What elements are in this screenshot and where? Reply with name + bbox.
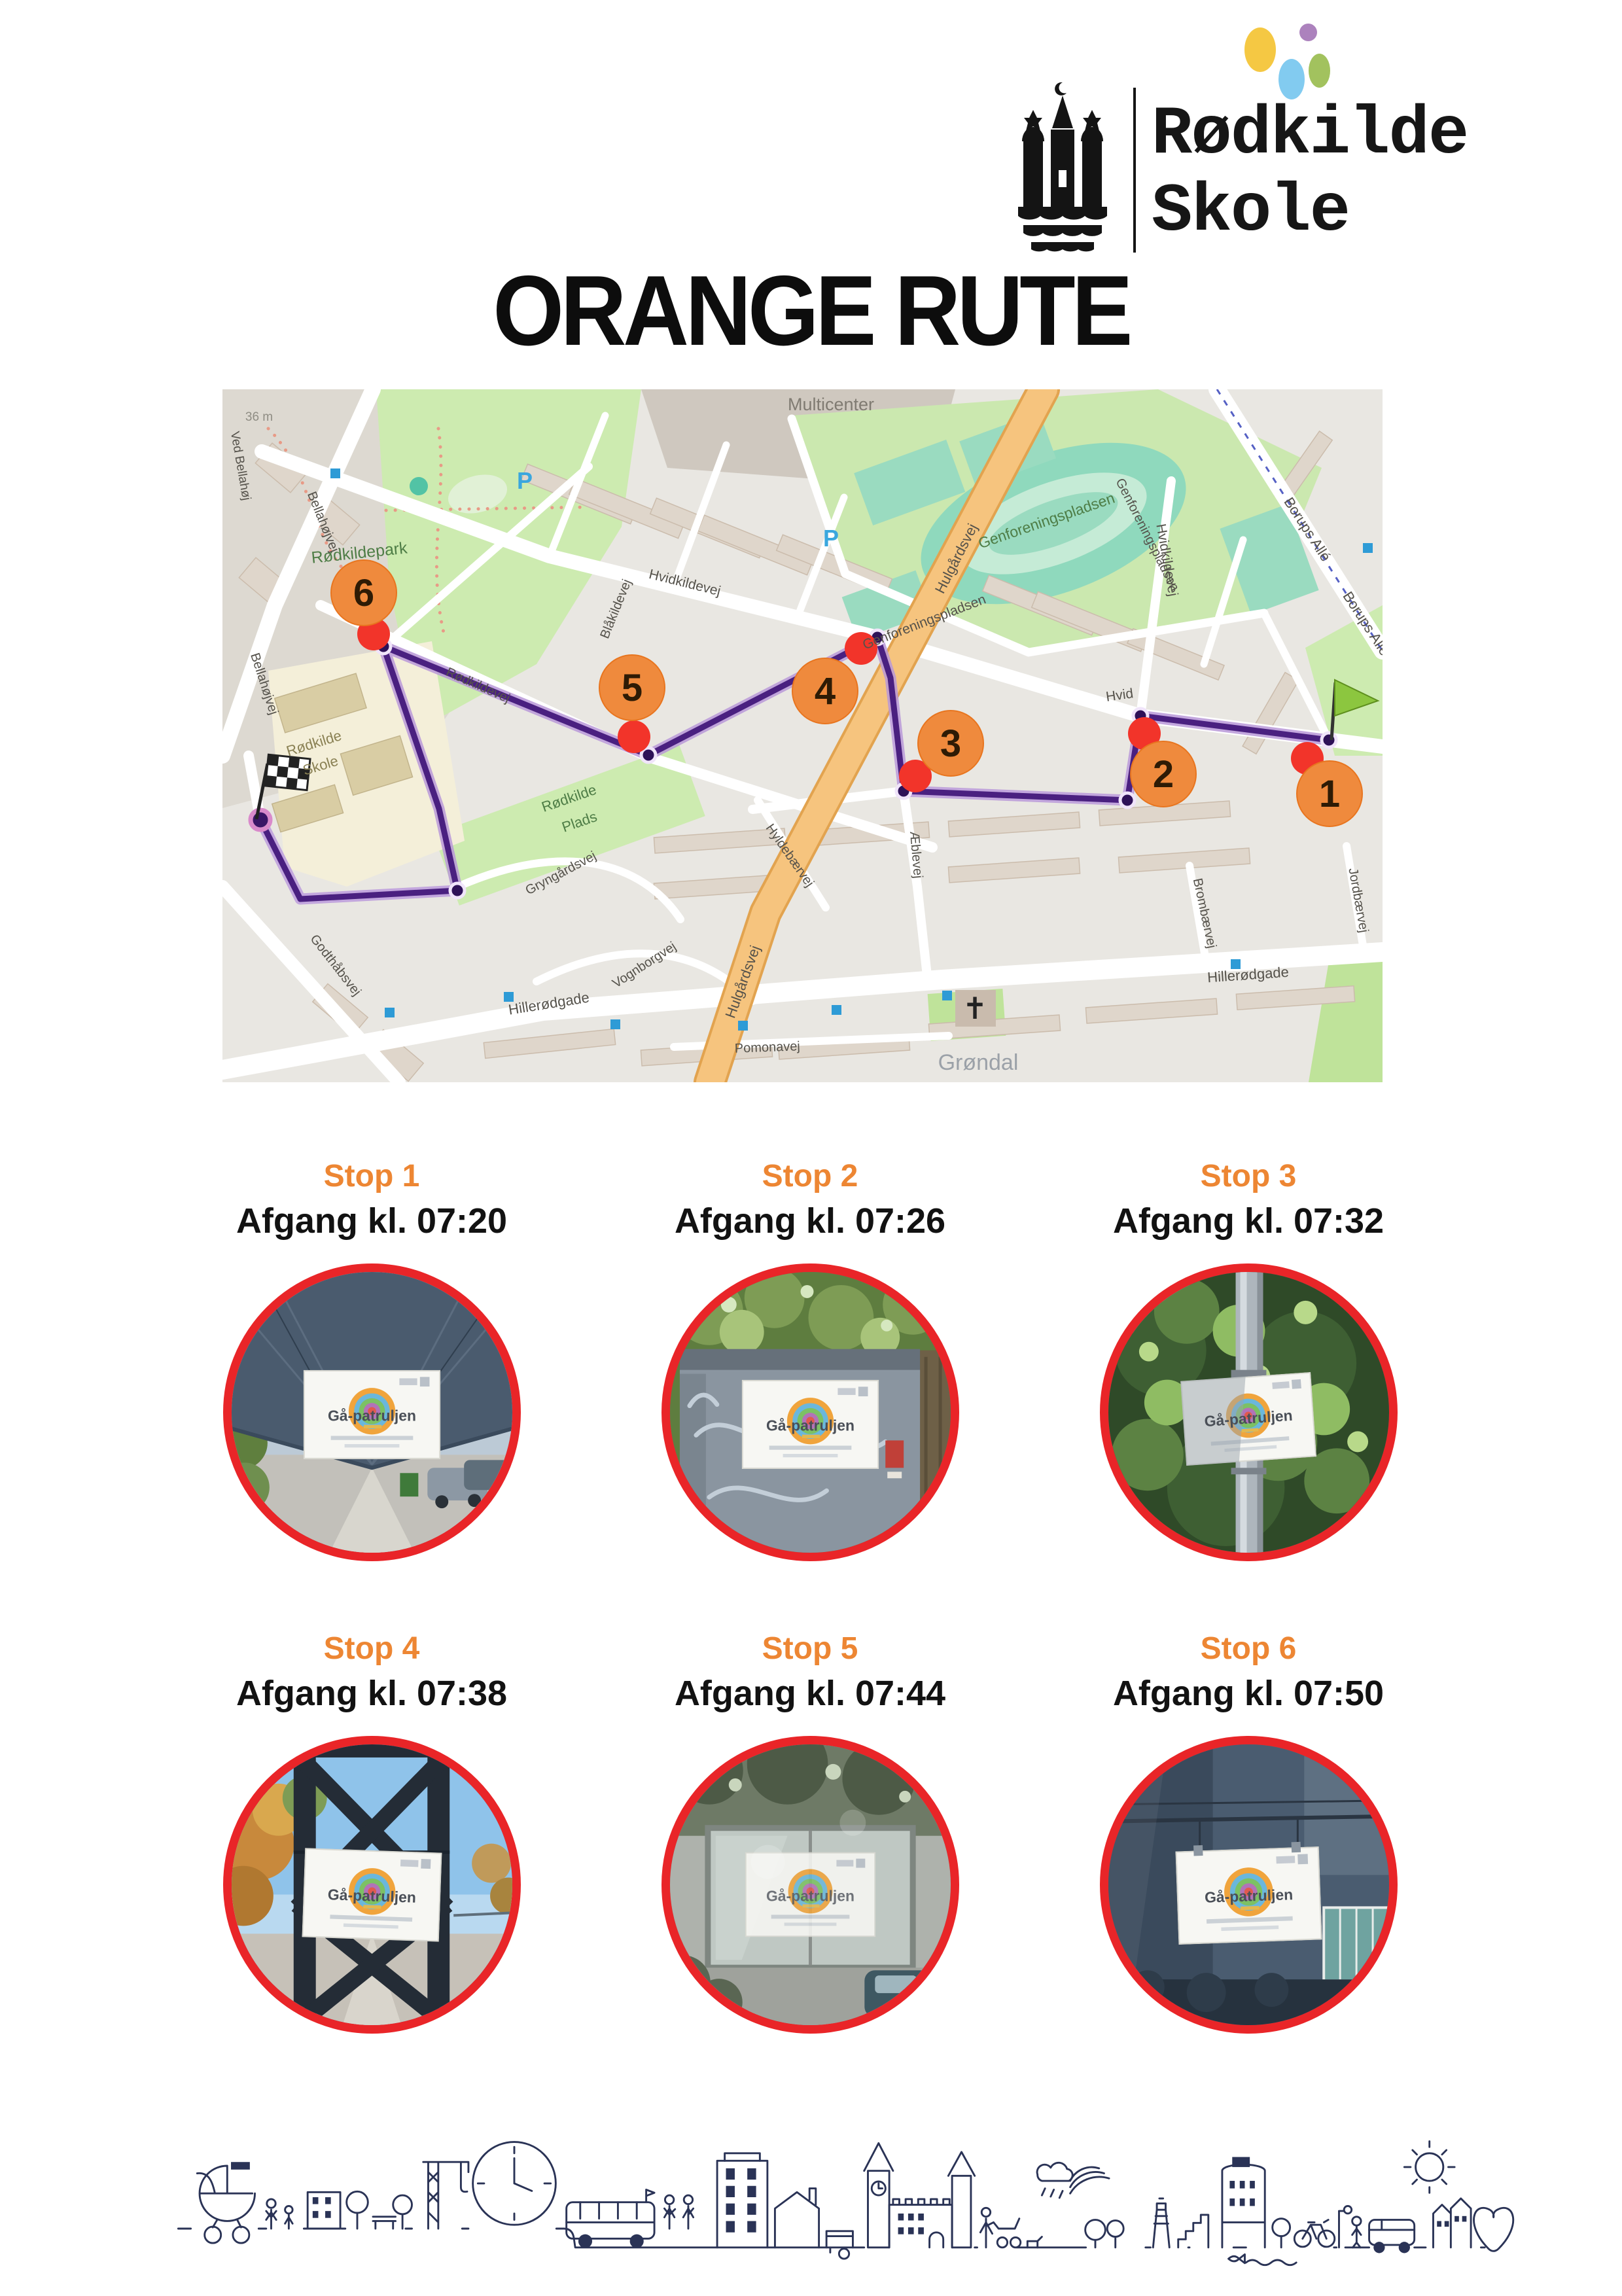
page: Rødkilde Skole ORANGE RUTE <box>0 0 1622 2296</box>
map-street-label: Pomonavej <box>734 1039 800 1055</box>
stop-card-1: Stop 1 Afgang kl. 07:20 Gå-patruljen <box>162 1158 581 1561</box>
map-stop-badge-6: 6 <box>331 560 397 626</box>
footer-cityscape-illustration <box>150 2134 1538 2291</box>
svg-text:2: 2 <box>1153 753 1174 796</box>
stop-5-label: Stop 5 <box>601 1631 1019 1667</box>
sign-text: Gå-patruljen <box>327 1886 416 1906</box>
map-svg: ✝ <box>222 389 1383 1082</box>
sign-text: Gå-patruljen <box>766 1887 854 1904</box>
stop-photo-1: Gå-patruljen <box>223 1263 521 1561</box>
stop-1-time: Afgang kl. 07:20 <box>162 1201 581 1241</box>
sign-text: Gå-patruljen <box>1204 1886 1293 1906</box>
stop-card-6: Stop 6 Afgang kl. 07:50 <box>1039 1631 1458 2034</box>
stop-card-2: Stop 2 Afgang kl. 07:26 <box>601 1158 1019 1561</box>
stop-5-time: Afgang kl. 07:44 <box>601 1673 1019 1714</box>
svg-text:4: 4 <box>815 670 836 713</box>
map-street-label: Multicenter <box>788 395 874 414</box>
stop-photo-3: Gå-patruljen <box>1100 1263 1398 1561</box>
logo-dot-green <box>1309 54 1330 88</box>
stop-photo-5: Gå-patruljen <box>661 1736 959 2034</box>
stop-card-5: Stop 5 Afgang kl. 07:44 Gå-patruljen <box>601 1631 1019 2034</box>
stop-photo-6: Gå-patruljen <box>1100 1736 1398 2034</box>
svg-text:6: 6 <box>353 572 374 614</box>
stop-card-4: Stop 4 Afgang kl. 07:38 <box>162 1631 581 2034</box>
map-stop-badge-4: 4 <box>792 658 858 724</box>
stop-3-label: Stop 3 <box>1039 1158 1458 1194</box>
svg-text:3: 3 <box>940 722 961 765</box>
map-stop-badge-2: 2 <box>1131 741 1196 807</box>
stop-4-label: Stop 4 <box>162 1631 581 1667</box>
map-street-label: Grøndal <box>938 1050 1019 1075</box>
logo-dot-blue <box>1278 59 1305 99</box>
copenhagen-towers-icon <box>1014 79 1111 259</box>
stop-2-time: Afgang kl. 07:26 <box>601 1201 1019 1241</box>
logo-school-sub: Skole <box>1152 174 1468 251</box>
map-stop-badge-5: 5 <box>599 655 665 720</box>
school-logo: Rødkilde Skole <box>1014 25 1511 267</box>
svg-text:✝: ✝ <box>962 991 988 1025</box>
stop-photo-4: Gå-patruljen <box>223 1736 521 2034</box>
svg-text:1: 1 <box>1319 773 1340 815</box>
stop-6-time: Afgang kl. 07:50 <box>1039 1673 1458 1714</box>
logo-divider <box>1133 88 1136 253</box>
map-street-label: P <box>517 467 533 494</box>
map-stop-badge-1: 1 <box>1297 761 1362 826</box>
stop-6-label: Stop 6 <box>1039 1631 1458 1667</box>
route-map: ✝ <box>222 389 1383 1082</box>
sign-text: Gå-patruljen <box>766 1417 854 1434</box>
map-street-label: P <box>823 525 839 552</box>
map-stop-badge-3: 3 <box>918 711 983 776</box>
stop-2-label: Stop 2 <box>601 1158 1019 1194</box>
logo-dot-yellow <box>1244 27 1276 72</box>
stop-card-3: Stop 3 Afgang kl. 07:32 Gå-patruljen <box>1039 1158 1458 1561</box>
stop-4-time: Afgang kl. 07:38 <box>162 1673 581 1714</box>
svg-text:5: 5 <box>622 667 643 709</box>
logo-text: Rødkilde Skole <box>1152 97 1468 251</box>
stop-1-label: Stop 1 <box>162 1158 581 1194</box>
map-street-label: 36 m <box>245 410 273 424</box>
stop-photo-2: Gå-patruljen <box>661 1263 959 1561</box>
logo-dot-purple <box>1299 24 1317 41</box>
stop-3-time: Afgang kl. 07:32 <box>1039 1201 1458 1241</box>
sign-text: Gå-patruljen <box>327 1407 415 1424</box>
page-title: ORANGE RUTE <box>493 254 1129 368</box>
logo-school-name: Rødkilde <box>1152 97 1468 174</box>
